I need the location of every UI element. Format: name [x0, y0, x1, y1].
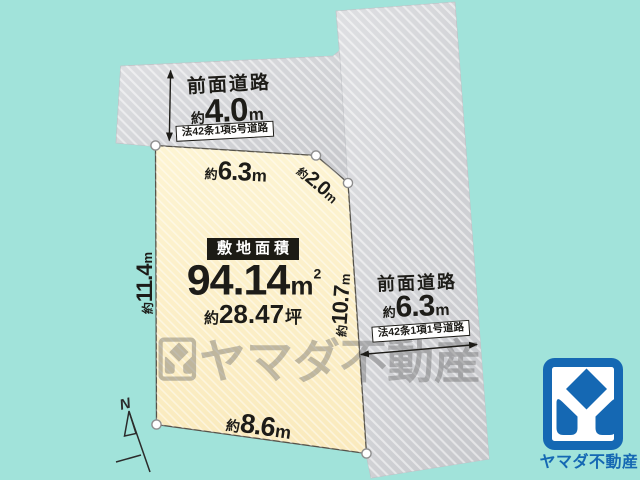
edge-right-dimension: 約10.7m	[328, 273, 354, 338]
vertex-marker	[152, 420, 161, 429]
dim-prefix: 約	[204, 166, 218, 182]
dim-prefix: 約	[382, 305, 396, 320]
dim-unit: m	[251, 166, 267, 186]
dim-unit: m	[435, 302, 450, 319]
right-road-width-label: 約6.3m	[382, 291, 450, 323]
area-number: 94.14	[187, 257, 290, 305]
edge-left-dimension: 約11.4m	[134, 252, 156, 314]
dim-prefix: 約	[335, 324, 350, 337]
vertex-marker	[343, 178, 352, 187]
diagram-canvas: ヤマダ不動産 N	[0, 0, 640, 480]
dim-value: 11.4	[132, 264, 157, 302]
watermark-text: ヤマダ不動産	[199, 335, 481, 388]
dim-value: 10.7	[327, 285, 355, 325]
watermark: ヤマダ不動産	[161, 335, 481, 388]
dim-unit: m	[337, 273, 353, 286]
dim-value: 6.3	[395, 289, 435, 323]
area-superscript: 2	[313, 266, 321, 282]
tsubo-number: 28.47	[219, 299, 284, 329]
yamada-logo-icon	[547, 362, 620, 447]
tsubo-prefix: 約	[204, 310, 219, 327]
dim-unit: m	[274, 421, 293, 443]
dim-value: 6.3	[217, 155, 252, 187]
dim-value: 8.6	[238, 408, 276, 443]
dim-unit: m	[140, 252, 155, 264]
edge-top-dimension: 約6.3m	[204, 156, 268, 185]
vertex-marker	[311, 151, 320, 160]
vertex-marker	[151, 141, 160, 150]
area-unit: m	[290, 271, 313, 301]
land-plot-diagram: ヤマダ不動産 N 前面道路 約4.0m 法42条1項5号道路	[0, 0, 640, 480]
vertex-marker	[362, 449, 371, 458]
site-tsubo-value: 約28.47坪	[204, 301, 302, 327]
yamada-logo-caption: ヤマダ不動産	[539, 455, 638, 471]
site-area-value: 94.14m2	[187, 260, 322, 303]
dim-prefix: 約	[141, 302, 155, 314]
tsubo-unit: 坪	[285, 308, 302, 327]
